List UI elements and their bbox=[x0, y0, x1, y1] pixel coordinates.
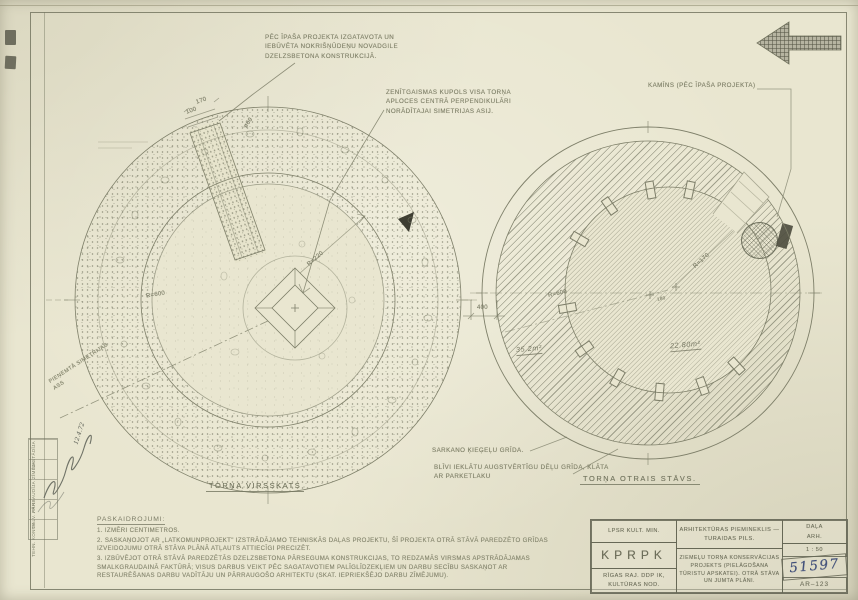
drawing-sheet: { "colors":{"paper":"#e9e6d0","pencil_li… bbox=[0, 0, 858, 600]
left-plan-caption: TORŅA VIRSSKATS bbox=[206, 481, 304, 492]
roof-inner-disc bbox=[152, 184, 384, 416]
edge-mark-top bbox=[5, 30, 16, 45]
note-item-1: 1. IZMĒRI CENTIMETROS. bbox=[97, 527, 549, 536]
right-dim-400: 400 bbox=[477, 305, 488, 311]
title-section-label: DAĻA bbox=[806, 523, 823, 531]
callout-chimney-note: KAMĪNS (PĒC ĪPAŠA PROJEKTA) bbox=[648, 81, 756, 90]
title-monument: ARHITEKTŪRAS PIEMINEKLIS — TURAIDAS PILS… bbox=[676, 520, 783, 549]
notes-block: PASKAIDROJUMI: 1. IZMĒRI CENTIMETROS. 2.… bbox=[97, 508, 549, 582]
title-org-ministry: LPSR KULT. MIN. bbox=[591, 520, 677, 543]
callout-gutter-note: PĒC ĪPAŠA PROJEKTA IZGATAVOTA UN IEBŪVĒT… bbox=[265, 33, 417, 61]
title-section: DAĻA ARH. bbox=[782, 520, 847, 544]
stamp-row-5: TEHN. KONTR. bbox=[31, 521, 36, 557]
right-plan-caption: TORŅA OTRAIS STĀVS. bbox=[580, 474, 700, 485]
plank-floor-hatch bbox=[565, 187, 771, 393]
callout-dome-note: ZENĪTGAISMAS KUPOLS VISA TORŅA APLOCES C… bbox=[386, 88, 526, 116]
title-project: ZIEMEĻU TORŅA KONSERVĀCIJAS PROJEKTS (PI… bbox=[676, 548, 783, 593]
title-org-office: KPRPK bbox=[591, 542, 677, 569]
area-ring-label: 35.2m² bbox=[516, 343, 543, 356]
notes-heading: PASKAIDROJUMI: bbox=[97, 516, 165, 525]
joist-pocket bbox=[654, 382, 665, 401]
title-sheet-number: AR–123 bbox=[782, 577, 847, 593]
title-block: LPSR KULT. MIN. KPRPK RĪGAS RAJ. DDP IK,… bbox=[590, 519, 848, 594]
callout-brick-floor: SARKANO ĶIEĢEĻU GRĪDA. bbox=[432, 446, 524, 455]
note-item-3: 3. IZBŪVĒJOT OTRĀ STĀVĀ PAREDZĒTĀS DZELZ… bbox=[97, 555, 549, 581]
stamp-row-2: ZĪMĒJA bbox=[31, 461, 36, 479]
stamp-strip: SASTĀDĪJA ZĪMĒJA PĀRBAUDĪJA GALV. ARH. T… bbox=[28, 438, 58, 540]
paper-top-edge bbox=[0, 5, 858, 6]
fireplace-plan bbox=[741, 222, 778, 259]
title-section-value: ARH. bbox=[807, 533, 822, 541]
title-org-dept: RĪGAS RAJ. DDP IK, KULTŪRAS NOD. bbox=[591, 568, 677, 593]
note-item-2: 2. SASKAŅOJOT AR „LATKOMUNPROJEKT" IZSTR… bbox=[97, 537, 549, 554]
edge-mark-bottom bbox=[5, 56, 17, 70]
